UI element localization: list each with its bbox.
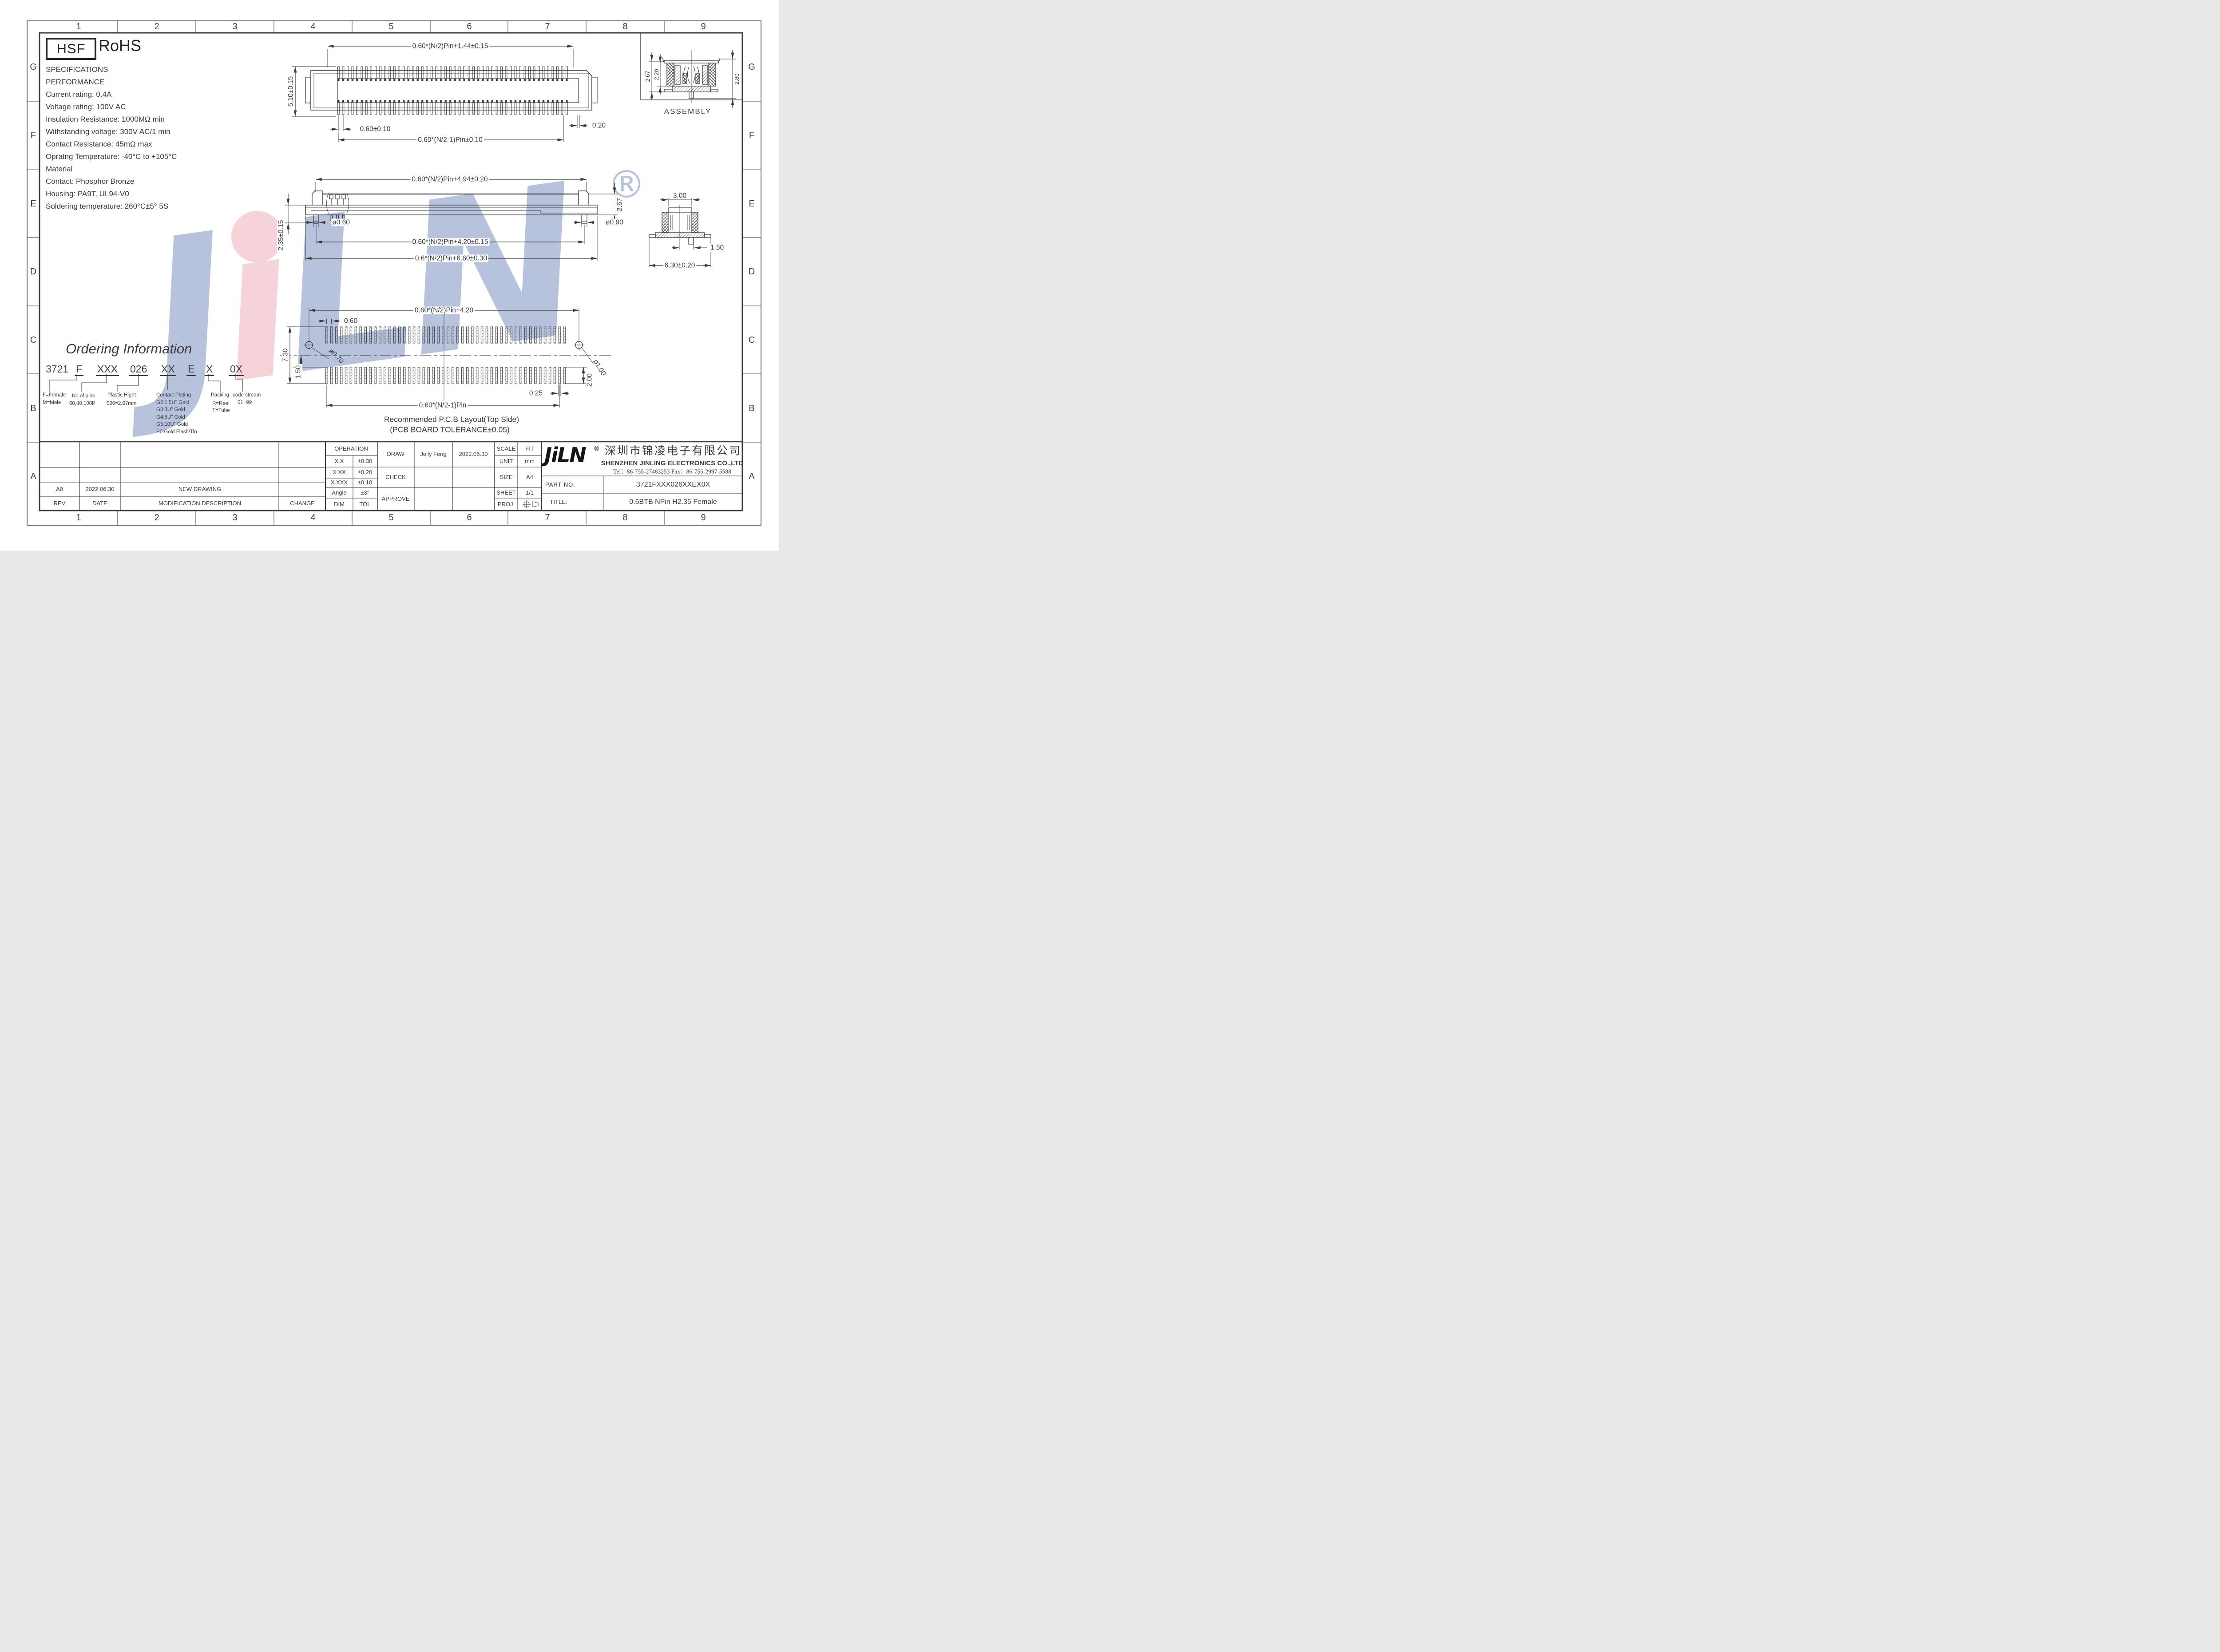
ordering-plating-line: G5:10U" Gold xyxy=(156,422,188,428)
tb-tolerance-cell: ±0.30 xyxy=(358,458,372,464)
ordering-packing-1: Packing xyxy=(211,392,229,398)
column-label: 7 xyxy=(545,513,550,523)
dim-pcb-gap: 0.25 xyxy=(528,389,544,397)
spec-line: Contact Resistance: 45mΩ max xyxy=(46,140,152,149)
tb-sheet-label: SHEET xyxy=(496,490,515,496)
ordering-stream-1: code stream xyxy=(233,392,261,398)
tb-tolerance-cell: ±3° xyxy=(361,490,369,496)
column-label: 9 xyxy=(701,22,706,32)
dim-pcb-pad-len: 2.00 xyxy=(586,372,593,388)
dim-side-view-standoff: 2.35±0.15 xyxy=(277,219,285,252)
ordering-pins-1: No.of pins xyxy=(72,393,95,399)
column-label: 2 xyxy=(154,513,159,523)
column-label: 1 xyxy=(76,22,81,32)
tb-check: CHECK xyxy=(385,474,406,480)
tb-tolerance-cell: ±0.20 xyxy=(358,469,372,475)
ordering-leader-lines xyxy=(49,374,242,392)
tb-tolerance-cell: TOL xyxy=(359,501,370,507)
spec-line: Contact: Phosphor Bronze xyxy=(46,177,134,186)
dim-top-view-width: 0.60*(N/2)Pin+1.44±0.15 xyxy=(411,42,490,50)
dim-side-view-pin-left: ø0.60 xyxy=(331,218,351,226)
row-label: E xyxy=(749,199,754,209)
dim-pcb-height: 7.30 xyxy=(281,347,289,363)
spec-line: Withstanding voltage: 300V AC/1 min xyxy=(46,127,170,136)
spec-line: Current rating: 0.4A xyxy=(46,90,111,99)
rev-id: A0 xyxy=(56,486,63,492)
dim-pcb-width: 0.60*(N/2)Pin+4.20 xyxy=(413,306,475,314)
row-label: D xyxy=(749,267,755,277)
contact-row-bottom xyxy=(337,100,568,102)
contact-row-top xyxy=(337,79,568,81)
tb-draw: DRAW xyxy=(387,451,404,457)
dim-top-view-pitch: 0.60±0.10 xyxy=(359,125,392,133)
ordering-plating-line: G3:3U" Gold xyxy=(156,407,185,413)
pad-row-bottom xyxy=(326,367,566,384)
dim-side-view-pin-right: ø0.90 xyxy=(604,218,625,226)
tb-scale-value: FIT xyxy=(525,446,534,452)
dim-cross-bottom: 6.30±0.20 xyxy=(663,261,697,269)
column-label: 7 xyxy=(545,22,550,32)
spec-line: Material xyxy=(46,165,72,174)
column-label: 8 xyxy=(622,22,627,32)
dim-cross-right: 1.50 xyxy=(709,244,725,251)
ordering-plating-line: Contact Plating xyxy=(156,392,191,398)
spec-line: Voltage rating: 100V AC xyxy=(46,103,126,111)
column-label: 8 xyxy=(622,513,627,523)
inner-border xyxy=(40,33,742,511)
ordering-plating-line: G4:5U" Gold xyxy=(156,415,185,420)
broken-pin-group xyxy=(327,193,349,221)
row-label: C xyxy=(749,335,755,345)
spec-line: Housing: PA9T, UL94-V0 xyxy=(46,190,129,198)
code-xxx: XXX xyxy=(96,363,119,376)
rev-header-rev: REV xyxy=(54,500,66,507)
dim-pcb-pitch: 0.60 xyxy=(343,317,359,325)
row-label: F xyxy=(749,131,754,140)
company-name-en: SHENZHEN JINLING ELECTRONICS CO.,LTD xyxy=(601,460,744,467)
tb-tolerance-cell: X.XXX xyxy=(331,479,348,486)
dim-top-view-height: 5.10±0.15 xyxy=(287,75,294,108)
ordering-plating-line: S0:Gold Flash/Tin xyxy=(156,429,197,435)
dim-top-view-span: 0.60*(N/2-1)Pin±0.10 xyxy=(416,136,484,143)
ordering-packing-2: R=Reel xyxy=(212,401,230,407)
company-logo-registered-icon: ® xyxy=(594,445,599,452)
tb-scale-label: SCALE xyxy=(497,446,516,452)
ordering-pins-2: 60,80,100P xyxy=(69,401,95,407)
tb-tolerance-cell: Angle xyxy=(332,490,346,496)
tb-sheet-value: 1/1 xyxy=(526,490,534,496)
end-clip-right xyxy=(592,77,597,103)
pad-row-top xyxy=(326,327,566,343)
column-label: 2 xyxy=(154,22,159,32)
dim-side-view-span-mid: 0.60*(N/2)Pin+4.20±0.15 xyxy=(411,238,490,246)
rev-header-date: DATE xyxy=(92,500,107,507)
company-logo: JiLN xyxy=(544,443,586,467)
dim-cross-top: 3.00 xyxy=(672,192,688,199)
pcb-caption-2: (PCB BOARD TOLERANCE±0.05) xyxy=(390,425,510,434)
rev-header-change: CHANGE xyxy=(290,500,315,507)
projection-symbol-icon xyxy=(523,500,538,508)
tb-size-value: A4 xyxy=(526,474,533,480)
housing-opening xyxy=(337,79,579,103)
pin-comb-bottom xyxy=(338,102,568,115)
dim-side-view-width: 0.60*(N/2)Pin+4.94±0.20 xyxy=(411,175,489,183)
pcb-layout-drawing xyxy=(280,305,613,409)
tb-unit-value: mm xyxy=(525,458,535,464)
column-label: 3 xyxy=(232,22,237,32)
column-label: 6 xyxy=(467,513,472,523)
end-clip-left xyxy=(305,77,311,103)
code-x: X xyxy=(205,363,214,376)
tb-title-label: TITLE: xyxy=(550,499,567,505)
tb-tolerance-cell: ±0.10 xyxy=(358,479,372,486)
dim-side-view-span-bottom: 0.6*(N/2)Pin+6.60±0.30 xyxy=(414,254,488,262)
dim-side-view-height: 2.67 xyxy=(616,197,623,213)
column-label: 4 xyxy=(310,22,315,32)
row-label: A xyxy=(749,471,754,481)
code-f: F xyxy=(75,363,83,376)
tb-proj-label: PROJ. xyxy=(498,501,515,507)
tb-partno-label: PART NO. xyxy=(545,482,575,488)
row-label: F xyxy=(31,131,36,140)
rev-desc: NEW DRAWING xyxy=(178,486,221,492)
rohs-label: RoHS xyxy=(99,36,141,55)
rev-header-desc: MODIFICATION DESCRIPTION xyxy=(159,500,241,507)
column-label: 5 xyxy=(388,513,393,523)
drawing-sheet: JıLN ® xyxy=(0,0,779,551)
tb-tolerance-cell: X.XX xyxy=(333,469,346,475)
row-label: C xyxy=(30,335,36,345)
tb-tolerance-cell: DIM xyxy=(334,501,345,507)
row-label: G xyxy=(748,62,755,72)
tb-tolerance-cell: X.X xyxy=(335,458,344,464)
tb-approve: APPROVE xyxy=(382,496,410,502)
assembly-caption: ASSEMBLY xyxy=(664,108,711,116)
row-label: B xyxy=(30,404,36,413)
tb-draw-date: 2022.06.30 xyxy=(459,451,488,457)
dim-assembly-220: 2.20 xyxy=(654,67,660,81)
ordering-gender-2: M=Male xyxy=(43,400,61,406)
row-label: G xyxy=(30,62,37,72)
hsf-badge: HSF xyxy=(46,38,96,60)
top-view-drawing xyxy=(292,46,597,142)
ordering-plating-line: G2:1.5U" Gold xyxy=(156,400,189,406)
cross-section-drawing xyxy=(649,198,711,267)
tb-size-label: SIZE xyxy=(500,474,513,480)
rev-date: 2022.06.30 xyxy=(85,486,114,492)
spec-line: PERFORMANCE xyxy=(46,78,104,87)
row-label: A xyxy=(30,471,36,481)
column-label: 9 xyxy=(701,513,706,523)
code-xx: XX xyxy=(160,363,176,376)
code-e: E xyxy=(186,363,196,376)
pin-comb-top xyxy=(338,67,568,79)
tb-unit-label: UNIT xyxy=(499,458,513,464)
tb-partno-value: 3721FXXX026XXEX0X xyxy=(636,481,710,489)
dim-assembly-280: 2.80 xyxy=(734,72,740,86)
spec-line: Opratng Temperature: -40°C to +105°C xyxy=(46,152,177,161)
code-026: 026 xyxy=(129,363,148,376)
ordering-gender-1: F=Female xyxy=(43,392,66,398)
column-label: 5 xyxy=(388,22,393,32)
tb-operation: OPERATION xyxy=(334,446,368,452)
ordering-packing-3: T=Tube xyxy=(212,408,230,414)
tb-drawn-by: Jelly Feng xyxy=(420,451,446,457)
row-label: B xyxy=(749,404,754,413)
mounting-hole-right xyxy=(574,340,593,364)
column-label: 4 xyxy=(310,513,315,523)
code-0x: 0X xyxy=(229,363,244,376)
spec-line: Soldering temperature: 260°C±5° 5S xyxy=(46,202,168,211)
spec-line: SPECIFICATIONS xyxy=(46,65,108,74)
dim-assembly-267: 2.67 xyxy=(645,69,651,83)
ordering-plastic-1: Plastic Hight xyxy=(107,392,136,398)
dim-pcb-offset: 1.50 xyxy=(294,364,302,380)
ordering-stream-2: 01~99 xyxy=(238,400,252,406)
ordering-plastic-2: 026=2.67mm xyxy=(107,401,136,407)
row-label: D xyxy=(30,267,36,277)
pcb-caption-1: Recommended P.C.B Layout(Top Side) xyxy=(384,415,519,424)
dim-top-view-pad: 0.20 xyxy=(591,122,607,129)
company-tel: Tel：86-755-27483253 Fax：86-755-2997-5588 xyxy=(613,469,731,475)
hsf-label: HSF xyxy=(57,41,86,57)
row-label: E xyxy=(30,199,36,209)
column-label: 6 xyxy=(467,22,472,32)
column-label: 1 xyxy=(76,513,81,523)
column-label: 3 xyxy=(232,513,237,523)
spec-line: Insulation Resistance: 1000MΩ min xyxy=(46,115,165,124)
ordering-title: Ordering Information xyxy=(66,341,192,357)
tb-title-value: 0.6BTB NPin H2.35 Female xyxy=(629,498,717,506)
company-name-cn: 深圳市锦凌电子有限公司 xyxy=(605,445,741,457)
dim-pcb-span: 0.60*(N/2-1)Pin xyxy=(418,401,468,409)
code-3721: 3721 xyxy=(44,363,70,375)
